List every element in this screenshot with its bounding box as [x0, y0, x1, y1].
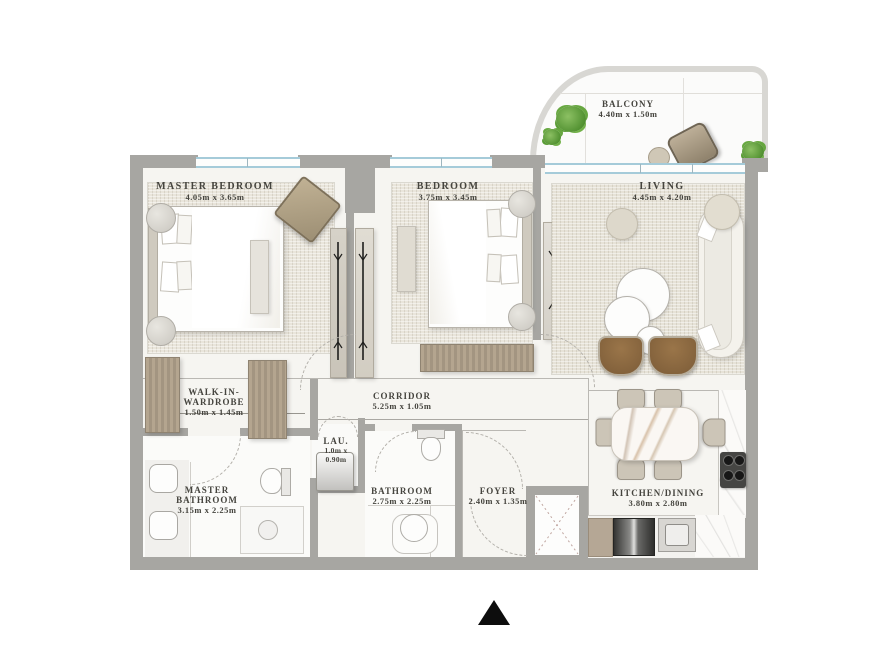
bed-bench	[250, 240, 269, 314]
room-name: BATHROOM	[371, 486, 433, 496]
room-name: LAU.	[323, 436, 348, 446]
wall-under-balcony	[742, 158, 768, 172]
room-dims: 4.45m x 4.20m	[633, 192, 692, 202]
window-mullion	[640, 164, 641, 173]
room-name: FOYER	[469, 486, 528, 496]
outer-wall-right	[745, 160, 758, 563]
kitchen-dining-label: KITCHEN/DINING 3.80m x 2.80m	[612, 488, 705, 508]
plant-icon	[556, 106, 586, 132]
room-dims: 3.80m x 2.80m	[612, 498, 705, 508]
room-dims: 4.05m x 3.65m	[156, 192, 274, 202]
window-mullion	[247, 158, 248, 167]
outer-wall-left	[130, 155, 143, 570]
tall-cabinet	[588, 518, 613, 557]
walkin-closet	[145, 357, 180, 433]
room-dims: 0.90m	[323, 455, 348, 464]
room-name: MASTER BEDROOM	[156, 181, 274, 192]
room-dims: 2.75m x 2.25m	[371, 496, 433, 506]
wall-bathroom-right	[455, 424, 462, 557]
pouf	[606, 208, 638, 240]
room-name: BATHROOM	[176, 495, 238, 505]
master-bedroom-label: MASTER BEDROOM 4.05m x 3.65m	[156, 181, 274, 202]
balcony-floor-divider	[585, 94, 586, 166]
foyer-top-line	[462, 430, 526, 431]
pillow	[176, 215, 192, 245]
room-dims: 2.40m x 1.35m	[469, 496, 528, 506]
sink	[149, 511, 178, 540]
wall-bathroom-top	[365, 424, 375, 431]
foyer-label: FOYER 2.40m x 1.35m	[469, 486, 528, 506]
room-name: WARDROBE	[183, 397, 244, 407]
room-name: WALK-IN-	[183, 387, 244, 397]
armchair	[598, 336, 644, 376]
room-dims: 3.15m x 2.25m	[176, 505, 238, 515]
balcony-railing-line	[560, 93, 762, 94]
outer-wall-top	[298, 155, 392, 168]
bedroom-settee	[397, 226, 416, 292]
sink	[149, 464, 178, 493]
bedroom-dresser	[420, 344, 534, 372]
shower-drain	[258, 520, 278, 540]
burner-icon	[734, 470, 745, 481]
kitchen-counter-bottom	[695, 515, 745, 557]
room-dims: 4.40m x 1.50m	[599, 109, 658, 119]
outer-wall-bottom	[130, 557, 758, 570]
pillow	[486, 209, 501, 238]
bedroom-label: BEDROOM 3.75m x 3.45m	[417, 181, 480, 202]
nightstand	[146, 203, 176, 233]
window-mullion	[692, 164, 693, 173]
bathroom-label: BATHROOM 2.75m x 2.25m	[371, 486, 433, 506]
dining-chair	[703, 419, 726, 447]
burner-icon	[734, 455, 745, 466]
nightstand	[508, 190, 536, 218]
corridor-bottom-line	[318, 419, 588, 420]
floor-plan: BALCONY 4.40m x 1.50m	[0, 0, 870, 672]
wall-between-windows	[345, 168, 375, 213]
room-name: CORRIDOR	[373, 391, 432, 401]
laundry-label: LAU. 1.0m x 0.90m	[323, 436, 348, 464]
walkin-wardrobe-label: WALK-IN- WARDROBE 1.50m x 1.45m	[183, 387, 244, 417]
room-name: KITCHEN/DINING	[612, 488, 705, 498]
bedroom-bed-duvet	[430, 202, 486, 324]
living-label: LIVING 4.45m x 4.20m	[633, 181, 692, 202]
room-name: LIVING	[633, 181, 692, 192]
sink	[400, 514, 428, 542]
toilet-bowl	[421, 437, 441, 461]
armchair	[648, 336, 698, 376]
nightstand	[146, 316, 176, 346]
window-living-balcony	[545, 163, 745, 174]
room-name: BEDROOM	[417, 181, 480, 192]
window	[196, 157, 300, 168]
shaft-void	[535, 495, 579, 555]
balcony-label: BALCONY 4.40m x 1.50m	[599, 99, 658, 119]
toilet-bowl	[260, 468, 282, 494]
room-dims: 1.0m x	[323, 446, 348, 455]
burner-icon	[723, 470, 734, 481]
room-dims: 3.75m x 3.45m	[417, 192, 480, 202]
foyer-left-line	[462, 430, 463, 557]
room-name: MASTER	[176, 485, 238, 495]
oven-appliance	[613, 518, 655, 556]
plant-icon	[543, 129, 561, 145]
window-mullion	[441, 158, 442, 167]
outer-wall-top	[490, 155, 545, 168]
burner-icon	[723, 455, 734, 466]
north-arrow-icon	[478, 600, 510, 625]
master-bathroom-label: MASTER BATHROOM 3.15m x 2.25m	[176, 485, 238, 515]
wall-laundry-right	[358, 418, 365, 492]
kitchen-sink-basin	[665, 524, 689, 546]
pouf	[704, 194, 740, 230]
dining-table	[611, 407, 699, 461]
room-dims: 5.25m x 1.05m	[373, 401, 432, 411]
pillow	[486, 254, 501, 283]
room-name: BALCONY	[599, 99, 658, 109]
walkin-closet	[248, 360, 287, 439]
hanger-rail-icon	[356, 238, 370, 364]
nightstand	[508, 303, 536, 331]
pillow	[499, 254, 519, 284]
corridor-top-line	[143, 378, 588, 379]
shaft-x-icon	[535, 495, 579, 555]
corridor-label: CORRIDOR 5.25m x 1.05m	[373, 391, 432, 411]
pillow	[176, 261, 192, 291]
room-dims: 1.50m x 1.45m	[183, 407, 244, 417]
toilet	[281, 468, 291, 496]
